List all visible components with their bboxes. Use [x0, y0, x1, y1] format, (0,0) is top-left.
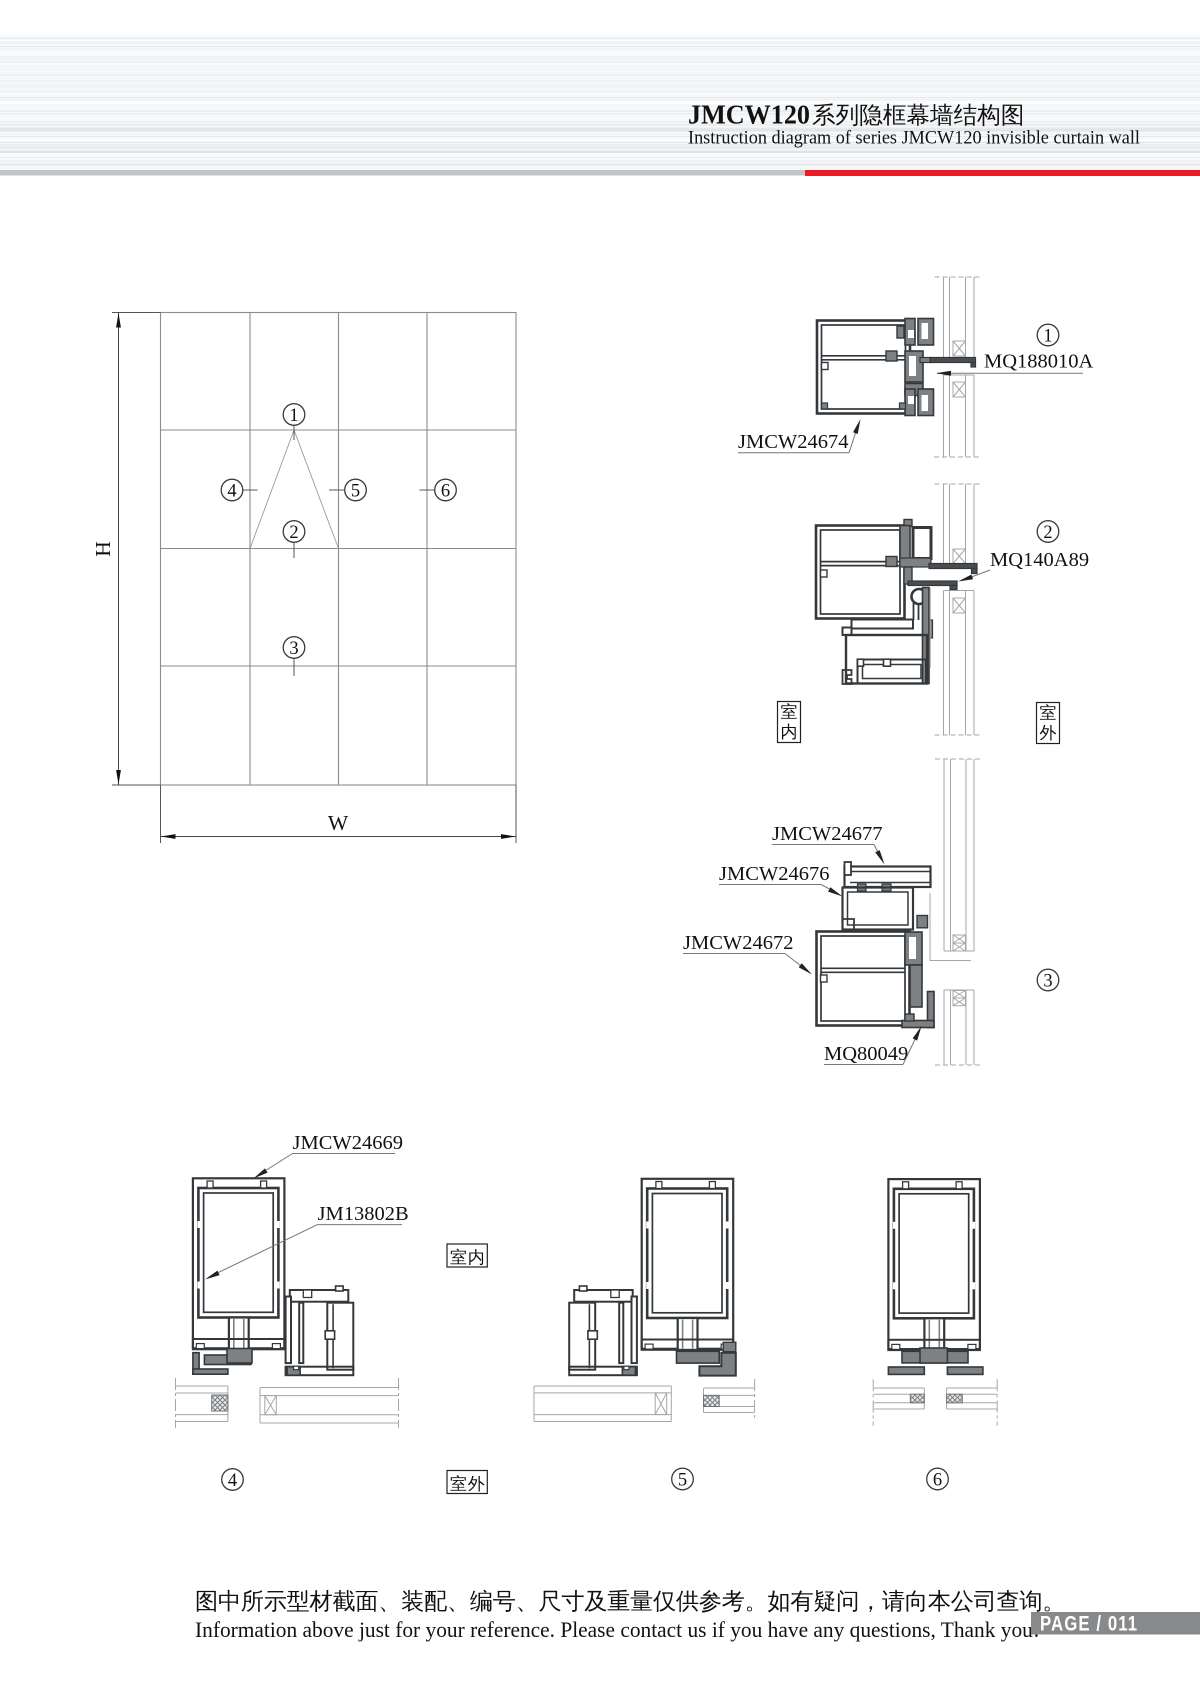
- svg-text:PAGE / 011: PAGE / 011: [1040, 1613, 1138, 1636]
- svg-text:5: 5: [351, 481, 360, 501]
- svg-text:6: 6: [933, 1470, 942, 1490]
- svg-text:MQ188010A: MQ188010A: [984, 351, 1094, 373]
- svg-text:4: 4: [227, 481, 236, 501]
- svg-text:JMCW24672: JMCW24672: [683, 932, 793, 954]
- svg-text:5: 5: [678, 1470, 687, 1490]
- svg-text:3: 3: [1043, 971, 1052, 991]
- svg-text:JMCW24674: JMCW24674: [738, 431, 848, 453]
- svg-text:2: 2: [289, 523, 298, 543]
- svg-text:Information above just for you: Information above just for your referenc…: [195, 1617, 1040, 1642]
- svg-text:4: 4: [228, 1471, 237, 1491]
- svg-text:JM13802B: JM13802B: [318, 1203, 409, 1225]
- svg-text:1: 1: [1043, 326, 1052, 346]
- svg-text:6: 6: [441, 481, 450, 501]
- svg-text:MQ80049: MQ80049: [824, 1043, 908, 1065]
- svg-text:H: H: [91, 541, 115, 557]
- svg-text:1: 1: [289, 406, 298, 426]
- svg-text:3: 3: [289, 639, 298, 659]
- svg-text:Instruction diagram of series: Instruction diagram of series JMCW120 in…: [688, 128, 1140, 149]
- svg-text:JMCW120: JMCW120: [688, 100, 810, 130]
- svg-text:JMCW24677: JMCW24677: [772, 823, 882, 845]
- svg-text:MQ140A89: MQ140A89: [990, 549, 1089, 571]
- svg-text:JMCW24669: JMCW24669: [293, 1132, 403, 1154]
- svg-text:JMCW24676: JMCW24676: [719, 863, 829, 885]
- svg-text:W: W: [328, 811, 349, 835]
- svg-text:2: 2: [1043, 523, 1052, 543]
